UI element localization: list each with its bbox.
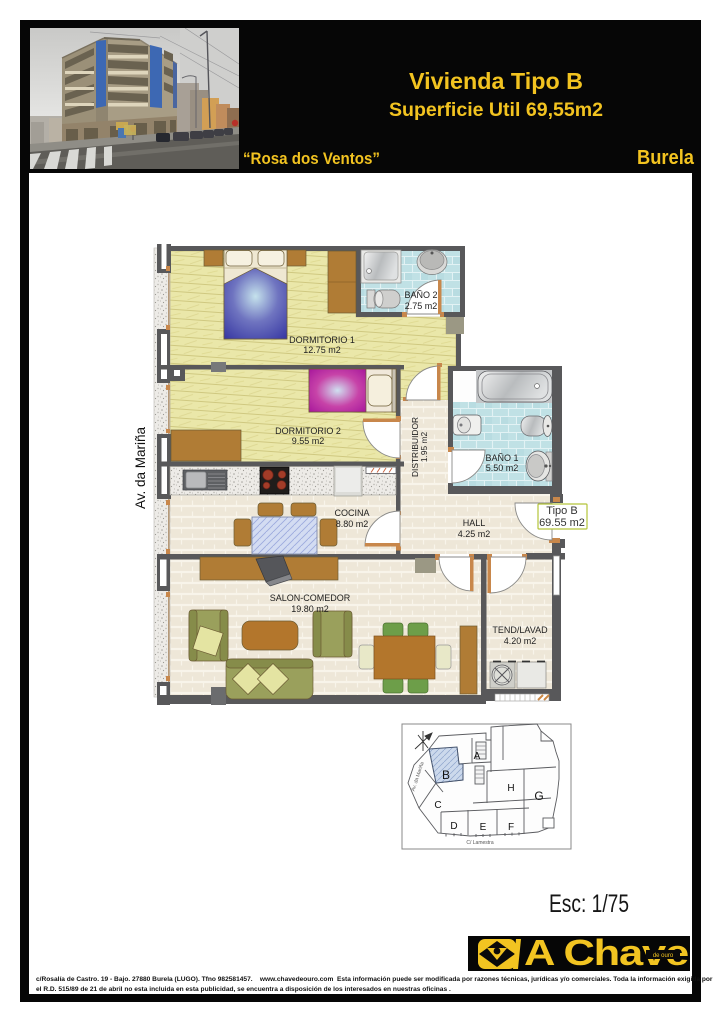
svg-text:2.75 m2: 2.75 m2 — [405, 301, 438, 311]
svg-text:TEND/LAVAD: TEND/LAVAD — [492, 625, 548, 635]
svg-text:COCINA: COCINA — [334, 508, 369, 518]
svg-text:Superficie Util 69,55m2: Superficie Util 69,55m2 — [389, 100, 603, 121]
svg-text:de ouro: de ouro — [653, 953, 674, 959]
svg-text:D: D — [450, 821, 457, 832]
svg-text:9.55 m2: 9.55 m2 — [292, 436, 325, 446]
svg-text:69.55 m2: 69.55 m2 — [539, 517, 585, 529]
svg-text:Esc: 1/75: Esc: 1/75 — [549, 890, 629, 918]
svg-text:el R.D. 515/89 de 21 de abril: el R.D. 515/89 de 21 de abril no esta in… — [36, 986, 451, 993]
svg-text:BAÑO 1: BAÑO 1 — [485, 453, 518, 463]
svg-text:1.95 m2: 1.95 m2 — [419, 432, 429, 463]
svg-text:DORMITORIO 1: DORMITORIO 1 — [289, 335, 355, 345]
svg-text:G: G — [534, 789, 543, 803]
svg-text:8.80 m2: 8.80 m2 — [336, 519, 369, 529]
svg-text:Tipo B: Tipo B — [546, 505, 577, 517]
svg-text:c/Rosalía de Castro. 19 - Bajo: c/Rosalía de Castro. 19 - Bajo. 27880 Bu… — [36, 976, 713, 983]
svg-text:Vivienda Tipo B: Vivienda Tipo B — [409, 68, 583, 94]
svg-text:Av. da Mariña: Av. da Mariña — [133, 426, 148, 509]
svg-text:HALL: HALL — [463, 518, 486, 528]
svg-text:5.50 m2: 5.50 m2 — [486, 463, 519, 473]
svg-text:F: F — [508, 822, 514, 833]
svg-text:19.80 m2: 19.80 m2 — [291, 604, 329, 614]
svg-text:C: C — [434, 800, 441, 811]
svg-text:SALON-COMEDOR: SALON-COMEDOR — [270, 593, 351, 603]
svg-text:Burela: Burela — [637, 147, 695, 169]
svg-text:4.25 m2: 4.25 m2 — [458, 529, 491, 539]
svg-text:A: A — [474, 751, 481, 762]
svg-text:“Rosa dos Ventos”: “Rosa dos Ventos” — [243, 149, 380, 168]
svg-text:12.75 m2: 12.75 m2 — [303, 345, 341, 355]
svg-text:BAÑO 2: BAÑO 2 — [404, 290, 437, 300]
svg-text:4.20 m2: 4.20 m2 — [504, 636, 537, 646]
svg-text:E: E — [480, 822, 487, 833]
svg-text:DORMITORIO 2: DORMITORIO 2 — [275, 426, 341, 436]
svg-text:B: B — [442, 768, 450, 782]
svg-text:H: H — [507, 783, 514, 794]
svg-text:C/ Lamestra: C/ Lamestra — [466, 840, 493, 846]
